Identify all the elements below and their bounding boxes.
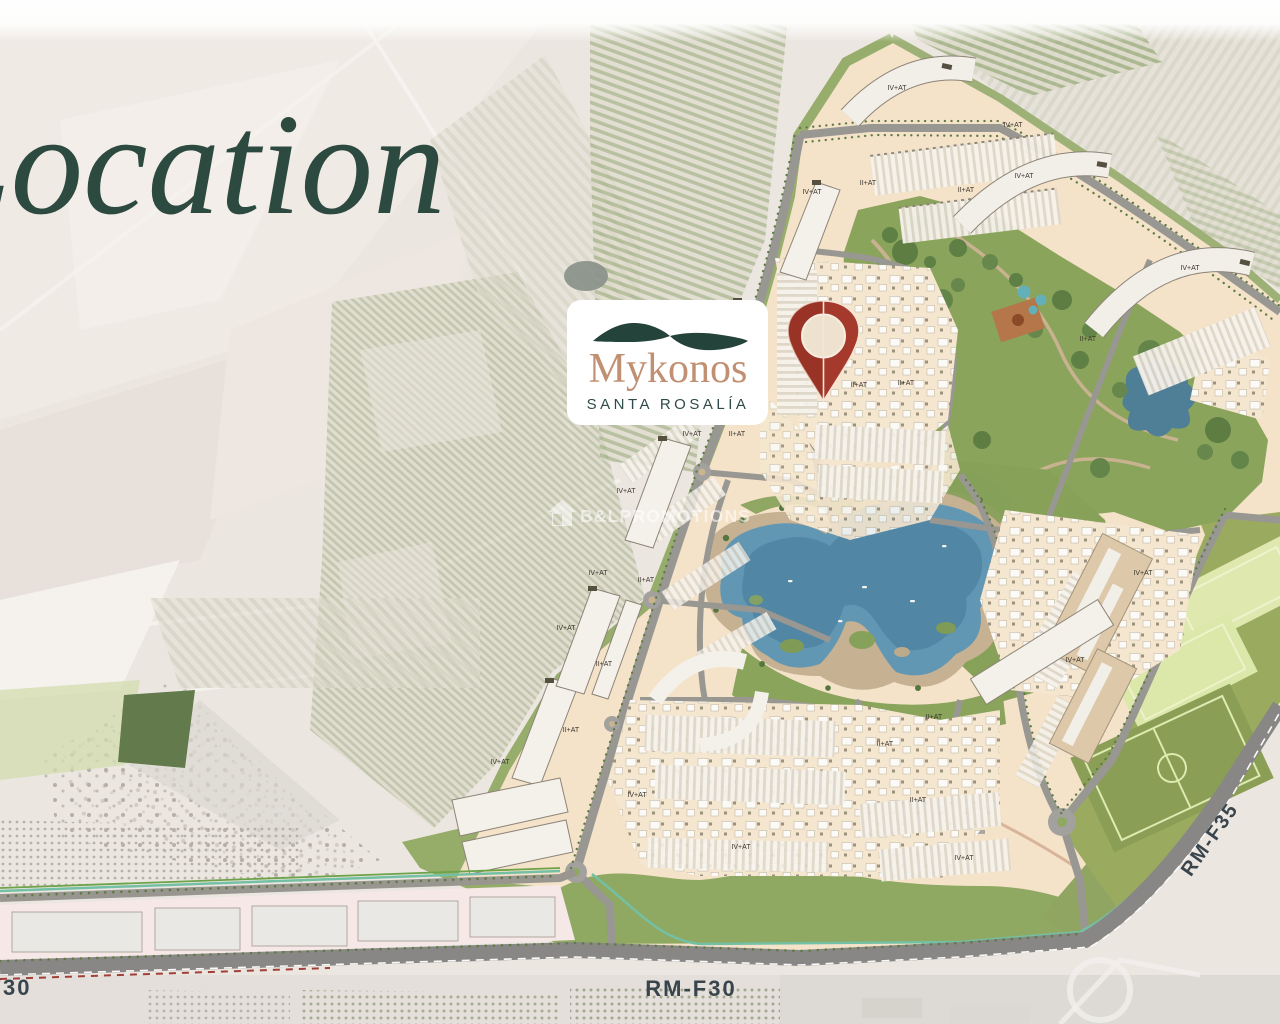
svg-text:IV+AT: IV+AT <box>1065 657 1085 664</box>
svg-text:Mykonos: Mykonos <box>589 346 748 392</box>
svg-text:II+AT: II+AT <box>729 431 746 438</box>
svg-text:IV+AT: IV+AT <box>954 855 974 862</box>
svg-text:IV+AT: IV+AT <box>1003 122 1023 129</box>
svg-text:II+AT: II+AT <box>1080 336 1097 343</box>
svg-text:II+AT: II+AT <box>596 661 613 668</box>
svg-text:II+AT: II+AT <box>851 382 868 389</box>
svg-text:IV+AT: IV+AT <box>490 759 510 766</box>
svg-text:II+AT: II+AT <box>910 797 927 804</box>
svg-text:II+AT: II+AT <box>958 187 975 194</box>
svg-text:RM-F30: RM-F30 <box>645 976 736 1001</box>
svg-text:II+AT: II+AT <box>638 577 655 584</box>
svg-text:IV+AT: IV+AT <box>731 844 751 851</box>
svg-text:II+AT: II+AT <box>877 741 894 748</box>
svg-text:II+AT: II+AT <box>898 380 915 387</box>
svg-text:II+AT: II+AT <box>860 180 877 187</box>
svg-text:RM-F30: RM-F30 <box>0 975 31 1000</box>
svg-text:IV+AT: IV+AT <box>1133 570 1153 577</box>
svg-text:IV+AT: IV+AT <box>588 570 608 577</box>
svg-text:IV+AT: IV+AT <box>887 85 907 92</box>
svg-text:II+AT: II+AT <box>563 727 580 734</box>
svg-text:Location: Location <box>0 85 446 245</box>
svg-text:II+AT: II+AT <box>926 714 943 721</box>
svg-text:IV+AT: IV+AT <box>802 189 822 196</box>
svg-text:IV+AT: IV+AT <box>1180 265 1200 272</box>
svg-text:IV+AT: IV+AT <box>616 488 636 495</box>
svg-text:IV+AT: IV+AT <box>627 792 647 799</box>
svg-text:IV+AT: IV+AT <box>556 625 576 632</box>
svg-text:IV+AT: IV+AT <box>1014 173 1034 180</box>
svg-text:SANTA ROSALÍA: SANTA ROSALÍA <box>587 396 750 413</box>
svg-text:B&LPROMOTIONS: B&LPROMOTIONS <box>580 506 751 526</box>
svg-text:IV+AT: IV+AT <box>682 431 702 438</box>
